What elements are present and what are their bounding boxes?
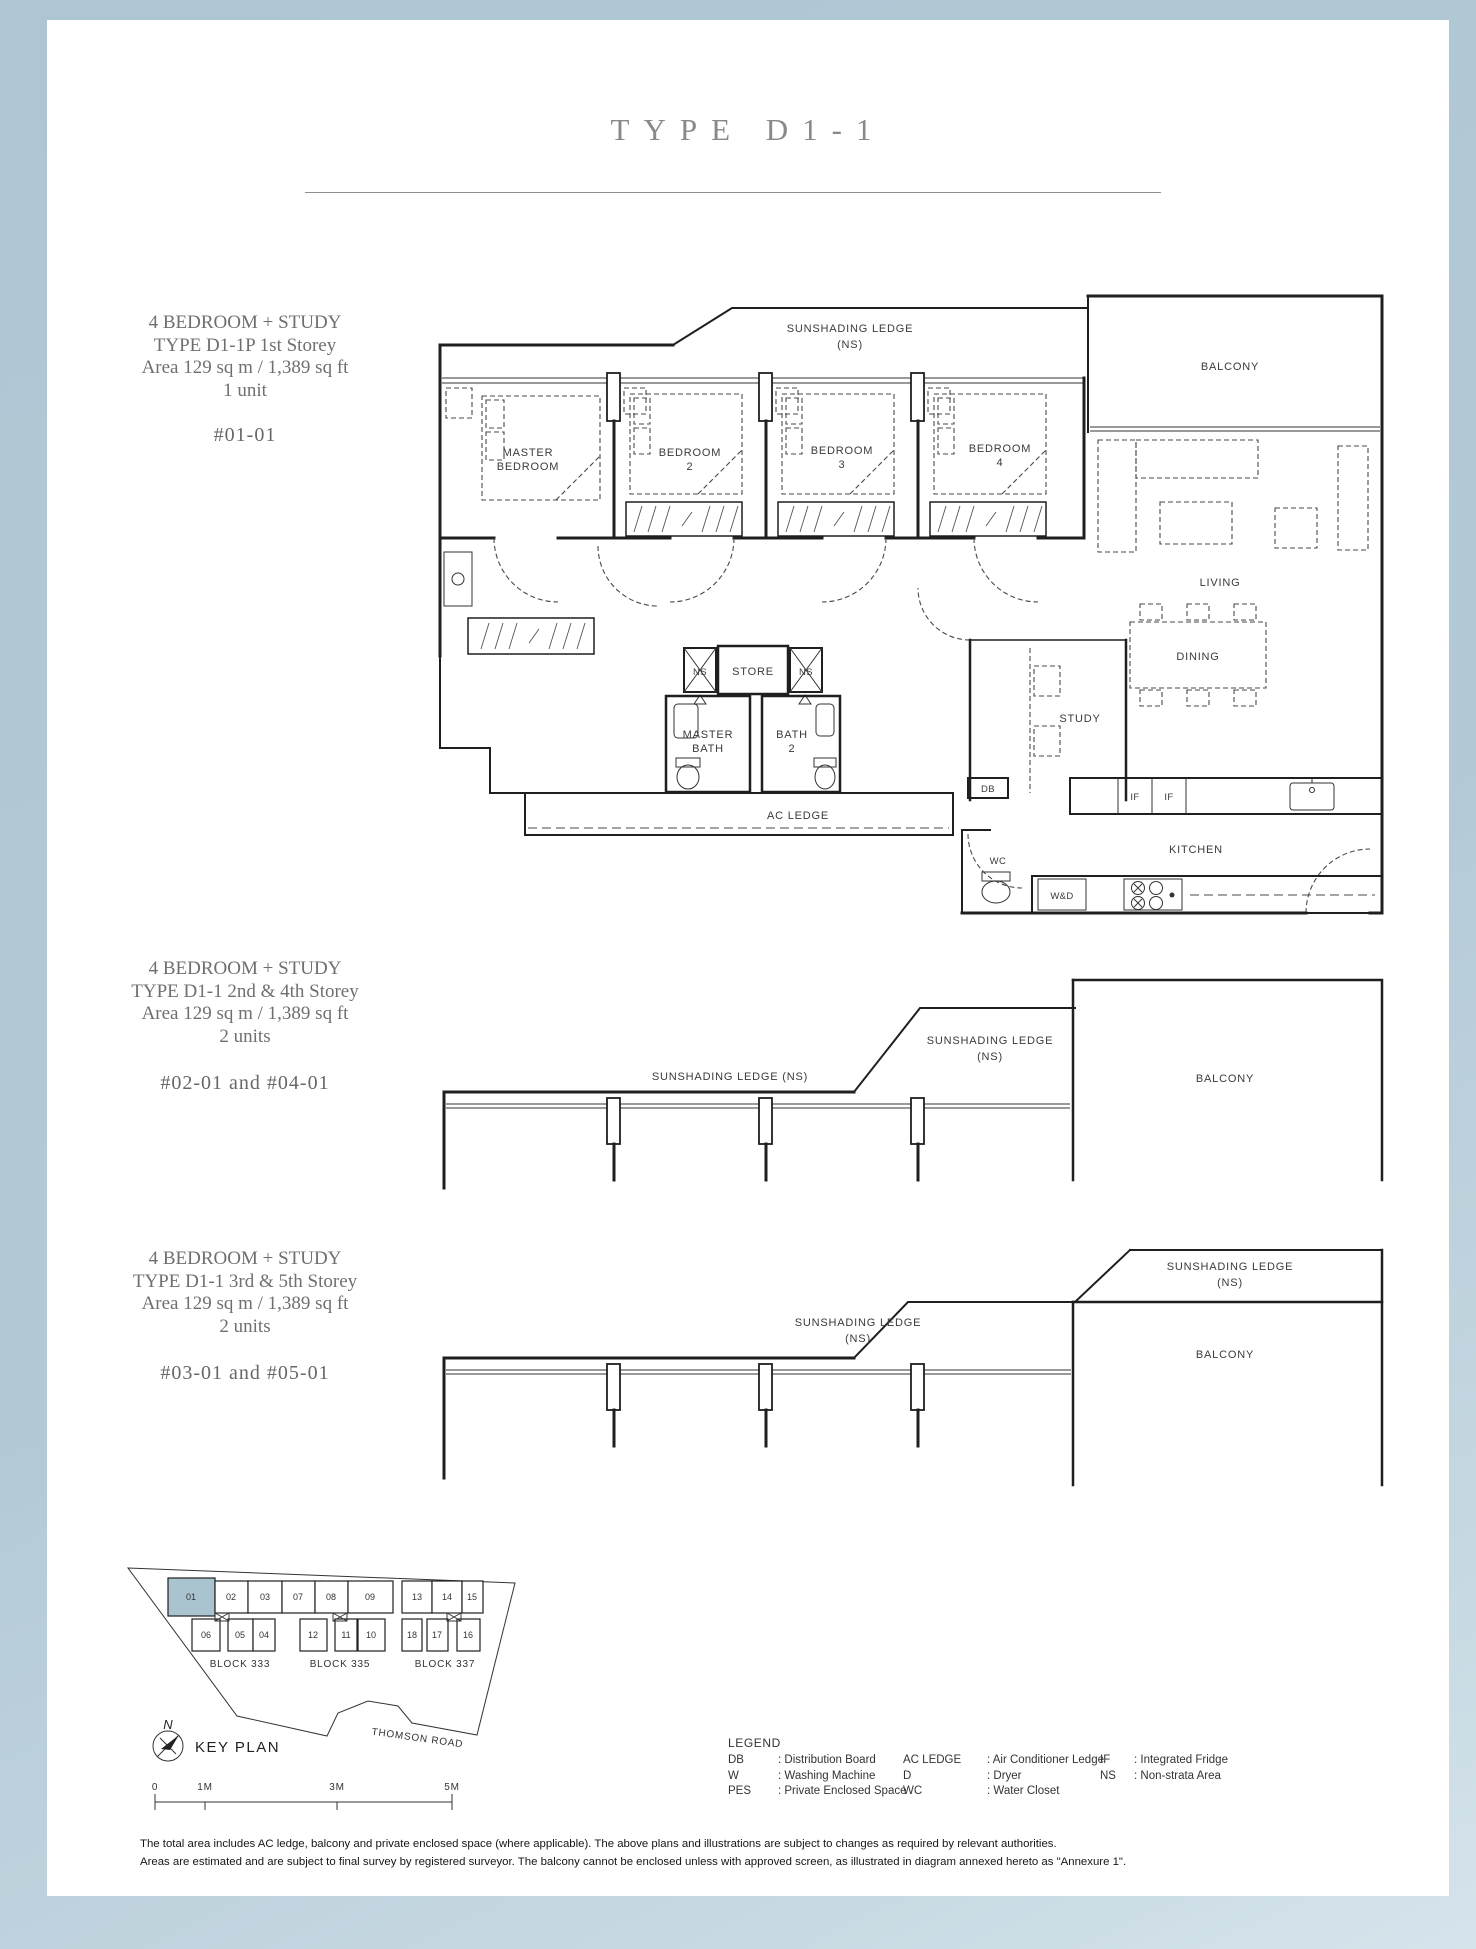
label-balcony-3: BALCONY — [1196, 1349, 1254, 1361]
master-bedroom-furniture — [446, 388, 600, 500]
section-3-line3: Area 129 sq m / 1,389 sq ft — [75, 1293, 415, 1316]
block-333-label: BLOCK 333 — [210, 1659, 271, 1670]
label-master-bath-2: BATH — [692, 743, 724, 755]
label-sunshading-1: SUNSHADING LEDGE — [787, 323, 914, 335]
label-sunshading-left3-1: SUNSHADING LEDGE — [795, 1317, 922, 1329]
legend-item-ns: NS : Non-strata Area — [1100, 1769, 1228, 1785]
label-bedroom2: BEDROOM — [659, 447, 721, 459]
bedroom3-furniture — [776, 388, 894, 494]
label-ns-left: NS — [693, 667, 707, 678]
floor-plan-first-storey: NS NS STORE MASTER BATH BATH 2 STUDY AC … — [430, 288, 1390, 938]
plan1-walls — [440, 296, 1382, 913]
block-337-label: BLOCK 337 — [415, 1659, 476, 1670]
section-2-line3: Area 129 sq m / 1,389 sq ft — [75, 1003, 415, 1026]
unit-num-04: 04 — [259, 1630, 269, 1640]
title-underline — [305, 192, 1161, 193]
page-title: TYPE D1-1 — [47, 112, 1449, 148]
section-1-info: 4 BEDROOM + STUDY TYPE D1-1P 1st Storey … — [75, 312, 415, 402]
section-2-line1: 4 BEDROOM + STUDY — [75, 958, 415, 981]
keyplan-block-labels: BLOCK 333 BLOCK 335 BLOCK 337 — [210, 1659, 476, 1670]
label-bedroom3-num: 3 — [839, 459, 846, 471]
unit-num-01: 01 — [186, 1592, 196, 1602]
label-bedroom4: BEDROOM — [969, 443, 1031, 455]
label-study: STUDY — [1059, 713, 1100, 725]
unit-num-16: 16 — [463, 1630, 473, 1640]
disclaimer: The total area includes AC ledge, balcon… — [140, 1836, 1390, 1871]
unit-num-14: 14 — [442, 1592, 452, 1602]
plan2-labels: SUNSHADING LEDGE (NS) SUNSHADING LEDGE (… — [652, 1035, 1254, 1085]
section-1-line1: 4 BEDROOM + STUDY — [75, 312, 415, 335]
legend-desc: : Water Closet — [987, 1784, 1059, 1800]
section-3-line2: TYPE D1-1 3rd & 5th Storey — [75, 1271, 415, 1294]
bedroom4-furniture — [928, 388, 1046, 494]
scale-bar: 0 1M 3M 5M — [152, 1782, 460, 1810]
wardrobes — [468, 502, 1046, 654]
unit-num-07: 07 — [293, 1592, 303, 1602]
label-dining: DINING — [1176, 651, 1219, 663]
floor-plan-3rd-5th-storey: SUNSHADING LEDGE (NS) SUNSHADING LEDGE (… — [430, 1240, 1390, 1492]
master-bath: MASTER BATH — [666, 696, 750, 792]
unit-num-02: 02 — [226, 1592, 236, 1602]
legend-abbr: AC LEDGE — [903, 1753, 987, 1769]
section-1-line2: TYPE D1-1P 1st Storey — [75, 335, 415, 358]
label-ns-right: NS — [799, 667, 813, 678]
label-bath2-2: 2 — [789, 743, 796, 755]
legend-desc: : Private Enclosed Space — [778, 1784, 907, 1800]
legend-item-db: DB : Distribution Board — [728, 1753, 907, 1769]
legend-desc: : Washing Machine — [778, 1769, 875, 1785]
section-2-unit-numbers: #02-01 and #04-01 — [75, 1072, 415, 1095]
north-label: N — [163, 1717, 173, 1732]
label-sunshading-tr-1: SUNSHADING LEDGE — [1167, 1261, 1294, 1273]
left-bath-fixture — [444, 552, 472, 606]
label-master-bedroom-1: MASTER — [503, 447, 554, 459]
unit-num-05: 05 — [235, 1630, 245, 1640]
plan3-labels: SUNSHADING LEDGE (NS) SUNSHADING LEDGE (… — [795, 1261, 1294, 1361]
label-balcony-2: BALCONY — [1196, 1073, 1254, 1085]
legend-desc: : Non-strata Area — [1134, 1769, 1221, 1785]
unit-num-13: 13 — [412, 1592, 422, 1602]
section-2-line4: 2 units — [75, 1026, 415, 1049]
scale-1m: 1M — [197, 1782, 213, 1793]
unit-num-11: 11 — [341, 1630, 350, 1640]
disclaimer-line-2: Areas are estimated and are subject to f… — [140, 1854, 1390, 1872]
legend-abbr: IF — [1100, 1753, 1134, 1769]
unit-num-10: 10 — [366, 1630, 376, 1640]
legend-item-d: D : Dryer — [903, 1769, 1104, 1785]
label-sunshading-mid-1: SUNSHADING LEDGE — [927, 1035, 1054, 1047]
section-3-unit-numbers: #03-01 and #05-01 — [75, 1362, 415, 1385]
disclaimer-line-1: The total area includes AC ledge, balcon… — [140, 1836, 1390, 1854]
label-balcony: BALCONY — [1201, 361, 1259, 373]
label-bedroom2-num: 2 — [687, 461, 694, 473]
bath-2: BATH 2 — [762, 696, 840, 792]
kitchen: IF IF KITCHEN W&D — [1032, 778, 1382, 913]
label-sunshading-mid-2: (NS) — [977, 1051, 1003, 1063]
legend-item-wc: WC : Water Closet — [903, 1784, 1104, 1800]
label-store: STORE — [732, 666, 774, 678]
section-3-line1: 4 BEDROOM + STUDY — [75, 1248, 415, 1271]
legend-abbr: PES — [728, 1784, 778, 1800]
legend-abbr: WC — [903, 1784, 987, 1800]
living-furniture — [1098, 440, 1368, 552]
floor-plan-2nd-4th-storey: SUNSHADING LEDGE (NS) SUNSHADING LEDGE (… — [430, 958, 1390, 1190]
section-2-line2: TYPE D1-1 2nd & 4th Storey — [75, 981, 415, 1004]
legend-item-w: W : Washing Machine — [728, 1769, 907, 1785]
section-3-line4: 2 units — [75, 1316, 415, 1339]
legend-title: LEGEND — [728, 1736, 781, 1750]
section-1-line3: Area 129 sq m / 1,389 sq ft — [75, 357, 415, 380]
legend-abbr: D — [903, 1769, 987, 1785]
label-wd: W&D — [1050, 891, 1073, 902]
legend-item-if: IF : Integrated Fridge — [1100, 1753, 1228, 1769]
label-if-2: IF — [1164, 792, 1173, 803]
unit-num-08: 08 — [326, 1592, 336, 1602]
label-bedroom4-num: 4 — [997, 457, 1004, 469]
label-sunshading-left: SUNSHADING LEDGE (NS) — [652, 1071, 808, 1083]
label-living: LIVING — [1200, 577, 1241, 589]
db-box: DB — [968, 778, 1008, 798]
plan1-door-arcs — [494, 538, 1370, 913]
section-2-info: 4 BEDROOM + STUDY TYPE D1-1 2nd & 4th St… — [75, 958, 415, 1048]
legend-desc: : Dryer — [987, 1769, 1022, 1785]
legend-item-acledge: AC LEDGE : Air Conditioner Ledge — [903, 1753, 1104, 1769]
label-master-bedroom-2: BEDROOM — [497, 461, 559, 473]
legend-item-pes: PES : Private Enclosed Space — [728, 1784, 907, 1800]
legend-desc: : Integrated Fridge — [1134, 1753, 1228, 1769]
bedroom2-furniture — [624, 388, 742, 494]
unit-num-18: 18 — [407, 1630, 417, 1640]
legend-abbr: DB — [728, 1753, 778, 1769]
label-ac-ledge: AC LEDGE — [767, 810, 829, 822]
scale-5m: 5M — [444, 1782, 460, 1793]
study-room: STUDY — [970, 640, 1126, 800]
legend-column-1: DB : Distribution Board W : Washing Mach… — [728, 1753, 907, 1800]
label-if-1: IF — [1130, 792, 1139, 803]
block-335-label: BLOCK 335 — [310, 1659, 371, 1670]
label-db: DB — [981, 784, 995, 795]
label-wc: WC — [990, 856, 1007, 867]
section-1-unit-numbers: #01-01 — [75, 424, 415, 447]
legend-abbr: NS — [1100, 1769, 1134, 1785]
unit-num-06: 06 — [201, 1630, 211, 1640]
legend-desc: : Air Conditioner Ledge — [987, 1753, 1104, 1769]
legend-column-3: IF : Integrated Fridge NS : Non-strata A… — [1100, 1753, 1228, 1784]
key-plan: 01 02 03 07 08 09 13 14 15 06 05 04 12 1… — [105, 1538, 525, 1820]
unit-num-12: 12 — [308, 1630, 318, 1640]
label-sunshading-tr-2: (NS) — [1217, 1277, 1243, 1289]
label-sunshading-left3-2: (NS) — [845, 1333, 871, 1345]
label-master-bath-1: MASTER — [683, 729, 734, 741]
label-kitchen: KITCHEN — [1169, 844, 1223, 856]
label-sunshading-2: (NS) — [837, 339, 863, 351]
wc-room: WC — [982, 856, 1010, 903]
label-bath2-1: BATH — [776, 729, 808, 741]
section-3-info: 4 BEDROOM + STUDY TYPE D1-1 3rd & 5th St… — [75, 1248, 415, 1338]
ac-ledge: AC LEDGE — [525, 793, 953, 835]
unit-num-15: 15 — [467, 1592, 477, 1602]
unit-num-03: 03 — [260, 1592, 270, 1602]
label-bedroom3: BEDROOM — [811, 445, 873, 457]
legend-column-2: AC LEDGE : Air Conditioner Ledge D : Dry… — [903, 1753, 1104, 1800]
scale-3m: 3M — [329, 1782, 345, 1793]
section-1-line4: 1 unit — [75, 380, 415, 403]
legend-abbr: W — [728, 1769, 778, 1785]
legend-desc: : Distribution Board — [778, 1753, 876, 1769]
scale-0: 0 — [152, 1782, 158, 1793]
keyplan-title: KEY PLAN — [195, 1739, 280, 1756]
compass: N — [153, 1717, 183, 1761]
unit-num-09: 09 — [365, 1592, 375, 1602]
unit-num-17: 17 — [432, 1630, 442, 1640]
